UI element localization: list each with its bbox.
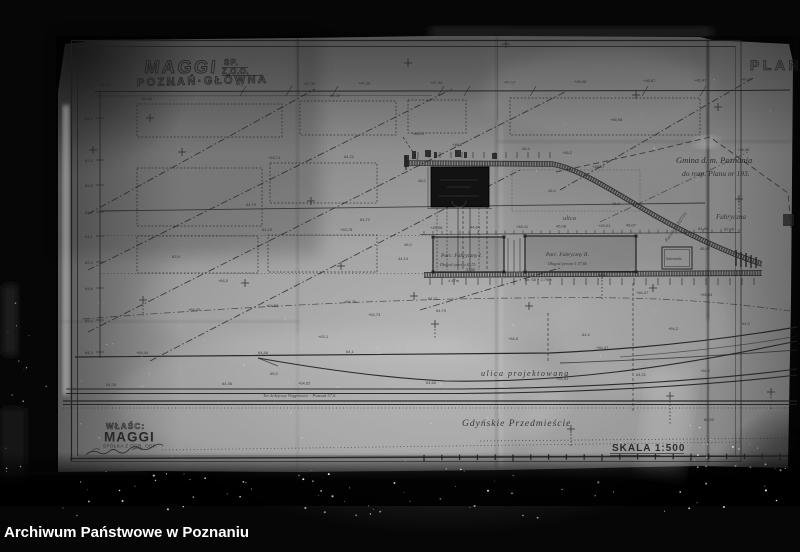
svg-text:+45,98: +45,98 [430, 225, 443, 230]
svg-text:4,47m: 4,47m [448, 278, 460, 283]
svg-text:45,47: 45,47 [700, 246, 711, 251]
svg-text:+64,53: +64,53 [266, 303, 279, 308]
svg-text:44,14: 44,14 [398, 256, 409, 261]
svg-text:Fabryczna: Fabryczna [715, 213, 746, 221]
svg-text:SP.: SP. [224, 58, 239, 67]
svg-text:+46,91: +46,91 [412, 131, 425, 136]
svg-text:+46,17: +46,17 [592, 164, 605, 169]
svg-text:64,46: 64,46 [258, 350, 269, 355]
svg-text:45,08: 45,08 [556, 224, 567, 229]
svg-text:64,3: 64,3 [85, 350, 94, 355]
svg-text:+64,1: +64,1 [700, 368, 711, 373]
svg-text:Tor. 58 ~ 2,79m: Tor. 58 ~ 2,79m [524, 277, 552, 282]
svg-text:+64,29: +64,29 [188, 307, 201, 312]
svg-text:64,36: 64,36 [222, 381, 233, 386]
svg-text:do rozp. Planu nr 193.: do rozp. Planu nr 193. [682, 169, 750, 178]
svg-text:+46,47: +46,47 [740, 77, 753, 82]
svg-text:64,22: 64,22 [344, 154, 355, 159]
svg-text:47,2: 47,2 [236, 82, 245, 87]
svg-text:+64,2: +64,2 [668, 326, 679, 331]
svg-text:+63,78: +63,78 [340, 227, 353, 232]
svg-text:Parc. Fabryczny I.: Parc. Fabryczny I. [440, 253, 482, 259]
svg-text:+47,30: +47,30 [303, 81, 316, 86]
svg-text:61,49: 61,49 [698, 226, 709, 231]
svg-text:64,66: 64,66 [426, 380, 437, 385]
svg-text:64,8: 64,8 [85, 286, 94, 291]
svg-text:MAGGI: MAGGI [104, 430, 155, 445]
svg-text:ulica: ulica [563, 215, 576, 222]
svg-text:PLAN: PLAN [750, 57, 800, 73]
svg-text:+46,67: +46,67 [643, 78, 656, 83]
svg-text:46,4: 46,4 [548, 188, 557, 193]
svg-text:46,4: 46,4 [522, 146, 531, 151]
svg-text:64,10: 64,10 [262, 227, 273, 232]
svg-text:+47,30: +47,30 [430, 80, 443, 85]
svg-text:+45,01: +45,01 [598, 223, 611, 228]
svg-text:64,71: 64,71 [428, 296, 439, 301]
svg-text:+46,6: +46,6 [452, 142, 463, 147]
svg-text:+64,44: +64,44 [136, 350, 149, 355]
svg-text:+63,46: +63,46 [140, 96, 153, 101]
svg-text:65,1: 65,1 [85, 318, 94, 323]
svg-text:45,07: 45,07 [626, 223, 637, 228]
svg-text:64,79: 64,79 [246, 202, 257, 207]
svg-text:66,00: 66,00 [704, 417, 715, 422]
svg-text:+47,17: +47,17 [503, 80, 516, 85]
svg-text:46,2: 46,2 [418, 178, 427, 183]
svg-text:63,9: 63,9 [172, 254, 181, 259]
svg-text:+63,1: +63,1 [318, 334, 329, 339]
svg-text:46,0: 46,0 [404, 242, 413, 247]
svg-text:+64,51: +64,51 [556, 376, 569, 381]
svg-text:+64,52: +64,52 [298, 381, 311, 386]
svg-text:45,9: 45,9 [612, 201, 621, 206]
svg-text:64,1: 64,1 [85, 234, 94, 239]
svg-text:44,64: 44,64 [470, 225, 481, 230]
svg-text:62,2: 62,2 [85, 210, 94, 215]
svg-text:63,8: 63,8 [85, 183, 94, 188]
svg-text:+46,2: +46,2 [562, 150, 573, 155]
svg-text:+64,0: +64,0 [218, 278, 229, 283]
svg-text:+66,98: +66,98 [610, 117, 623, 122]
svg-text:+47,36: +47,36 [358, 81, 371, 86]
svg-text:64,21: 64,21 [636, 372, 647, 377]
svg-text:+45,11: +45,11 [516, 224, 529, 229]
svg-text:64,22: 64,22 [330, 93, 341, 98]
svg-text:Parc. Fabryczny II.: Parc. Fabryczny II. [545, 252, 589, 258]
svg-text:+63,10: +63,10 [98, 82, 111, 87]
svg-text:64,79: 64,79 [436, 308, 447, 313]
svg-text:+64,47: +64,47 [596, 345, 609, 350]
svg-text:65,0: 65,0 [270, 371, 279, 376]
svg-text:64,72: 64,72 [360, 217, 371, 222]
svg-text:Gdyńskie Przedmieście: Gdyńskie Przedmieście [462, 419, 571, 429]
svg-text:+64,73: +64,73 [368, 312, 381, 317]
svg-text:62,76: 62,76 [724, 227, 735, 232]
svg-text:+63,84: +63,84 [700, 292, 713, 297]
svg-text:SPÓŁKA Z OGR. ODP.: SPÓŁKA Z OGR. ODP. [103, 443, 157, 449]
svg-text:MAGGI: MAGGI [144, 57, 220, 77]
svg-text:+64,47: +64,47 [636, 290, 649, 295]
svg-text:+46,47: +46,47 [694, 78, 707, 83]
svg-text:+46,98: +46,98 [574, 79, 587, 84]
svg-text:SKALA 1:500: SKALA 1:500 [612, 443, 685, 454]
svg-text:Schronisko: Schronisko [666, 257, 682, 261]
svg-text:64,0: 64,0 [742, 321, 751, 326]
svg-text:64,26: 64,26 [106, 382, 117, 387]
svg-text:Gmina d. m. Poznania: Gmina d. m. Poznania [676, 155, 752, 165]
svg-text:+64,5: +64,5 [508, 336, 519, 341]
svg-text:63,3: 63,3 [85, 260, 94, 265]
svg-text:63,46: 63,46 [166, 82, 177, 87]
svg-text:+64,79: +64,79 [344, 299, 357, 304]
svg-text:+63,71: +63,71 [268, 155, 281, 160]
svg-text:64,4: 64,4 [582, 332, 591, 337]
svg-text:63,1: 63,1 [85, 116, 94, 121]
svg-text:64,1: 64,1 [346, 349, 355, 354]
svg-text:+46,98: +46,98 [737, 147, 750, 152]
svg-text:62,3: 62,3 [85, 158, 94, 163]
